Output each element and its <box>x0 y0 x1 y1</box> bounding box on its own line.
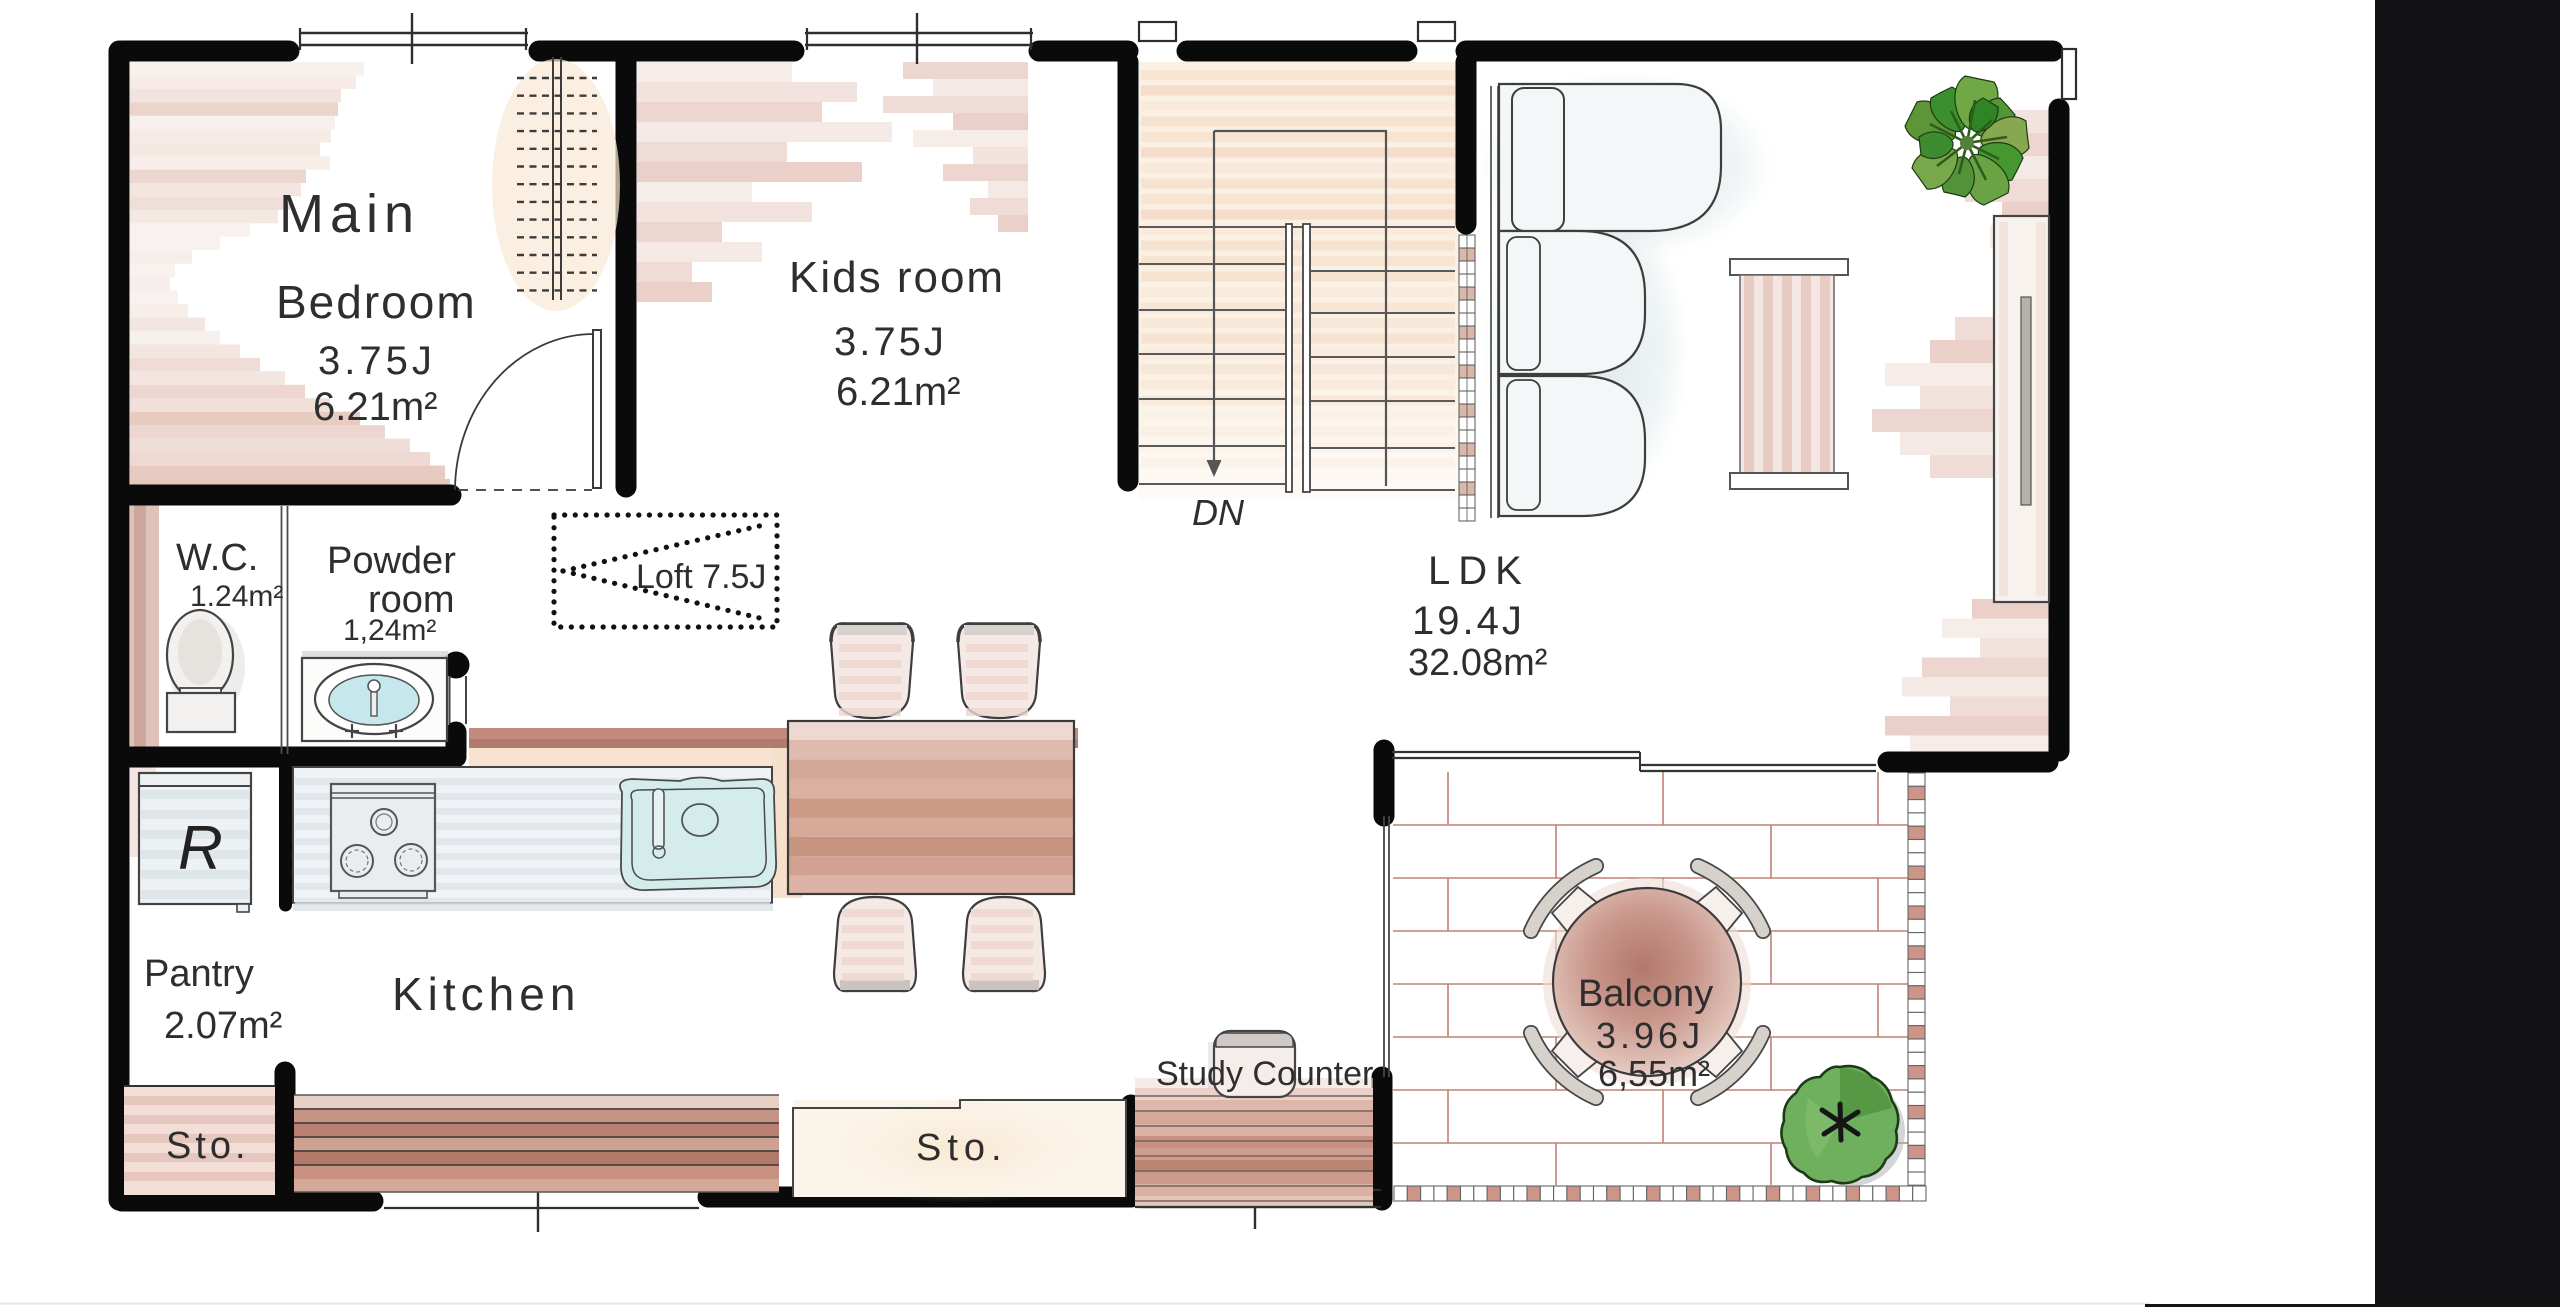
svg-text:W.C.: W.C. <box>176 537 258 579</box>
svg-text:6.21m²: 6.21m² <box>836 370 961 414</box>
svg-text:Pantry: Pantry <box>144 953 254 995</box>
svg-text:DN: DN <box>1192 492 1245 533</box>
svg-text:19.4J: 19.4J <box>1412 599 1525 643</box>
svg-text:Kids room: Kids room <box>789 253 1005 302</box>
svg-text:3.96J: 3.96J <box>1596 1015 1704 1056</box>
svg-text:Balcony: Balcony <box>1578 973 1713 1015</box>
svg-text:32.08m²: 32.08m² <box>1408 642 1547 684</box>
svg-text:Loft 7.5J: Loft 7.5J <box>636 558 766 596</box>
svg-text:3.75J: 3.75J <box>834 320 947 364</box>
svg-text:Sto.: Sto. <box>916 1127 1008 1169</box>
svg-text:Main: Main <box>279 184 420 244</box>
svg-text:1,24m²: 1,24m² <box>343 614 436 647</box>
svg-text:6.21m²: 6.21m² <box>313 385 438 429</box>
svg-text:2.07m²: 2.07m² <box>164 1005 282 1047</box>
svg-text:Sto.: Sto. <box>166 1125 250 1167</box>
svg-text:3.75J: 3.75J <box>318 339 436 383</box>
svg-text:Powder: Powder <box>327 540 456 582</box>
svg-text:LDK: LDK <box>1428 549 1530 593</box>
svg-text:1.24m²: 1.24m² <box>190 580 283 613</box>
svg-text:Study Counter: Study Counter <box>1156 1055 1373 1093</box>
svg-text:R: R <box>178 814 223 883</box>
svg-text:Kitchen: Kitchen <box>392 968 580 1020</box>
svg-text:6,55m²: 6,55m² <box>1598 1053 1710 1094</box>
svg-text:Bedroom: Bedroom <box>276 276 477 328</box>
